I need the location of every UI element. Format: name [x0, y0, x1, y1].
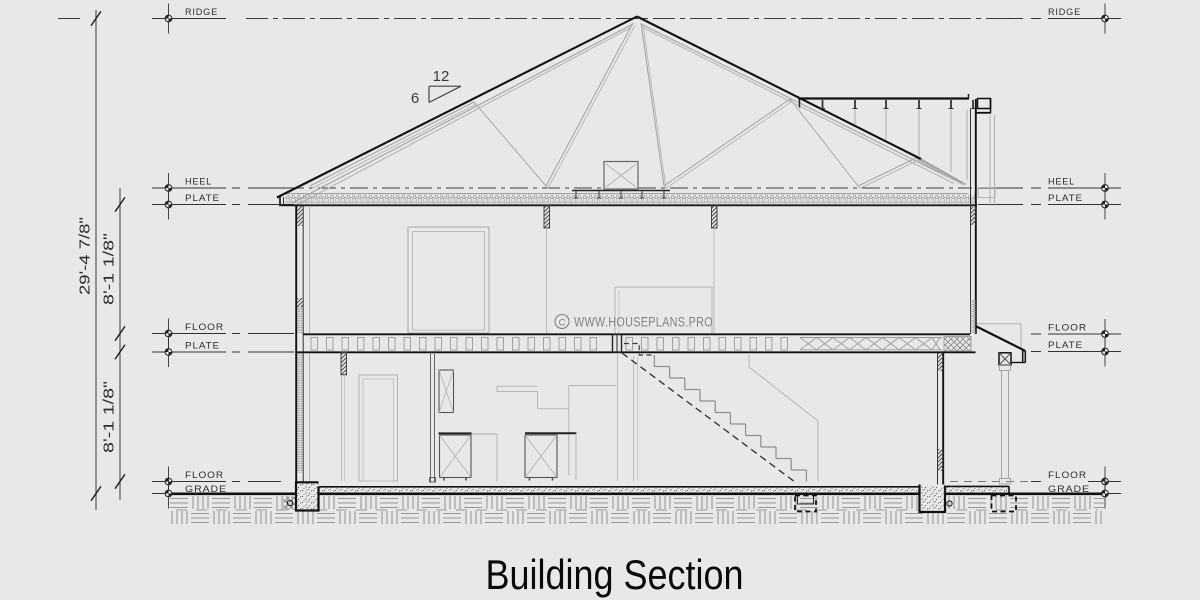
svg-text:PLATE: PLATE: [185, 193, 220, 203]
svg-text:Building Section: Building Section: [486, 551, 744, 598]
svg-text:HEEL: HEEL: [1048, 177, 1075, 187]
svg-text:PLATE: PLATE: [185, 341, 220, 351]
svg-text:RIDGE: RIDGE: [185, 7, 218, 17]
svg-text:RIDGE: RIDGE: [1048, 7, 1081, 17]
svg-text:8'-1 1/8": 8'-1 1/8": [101, 381, 118, 453]
svg-text:PLATE: PLATE: [1048, 340, 1083, 350]
svg-text:6: 6: [411, 90, 419, 107]
svg-text:FLOOR: FLOOR: [1048, 323, 1087, 333]
svg-text:12: 12: [433, 68, 450, 85]
svg-text:HEEL: HEEL: [185, 177, 212, 187]
svg-text:FLOOR: FLOOR: [185, 470, 224, 480]
svg-text:PLATE: PLATE: [1048, 193, 1083, 203]
svg-text:WWW.HOUSEPLANS.PRO: WWW.HOUSEPLANS.PRO: [574, 315, 713, 330]
svg-text:FLOOR: FLOOR: [1048, 470, 1087, 480]
svg-text:29'-4 7/8": 29'-4 7/8": [77, 217, 94, 295]
svg-text:8'-1 1/8": 8'-1 1/8": [101, 233, 118, 305]
svg-text:FLOOR: FLOOR: [185, 322, 224, 332]
svg-text:C: C: [559, 318, 566, 329]
